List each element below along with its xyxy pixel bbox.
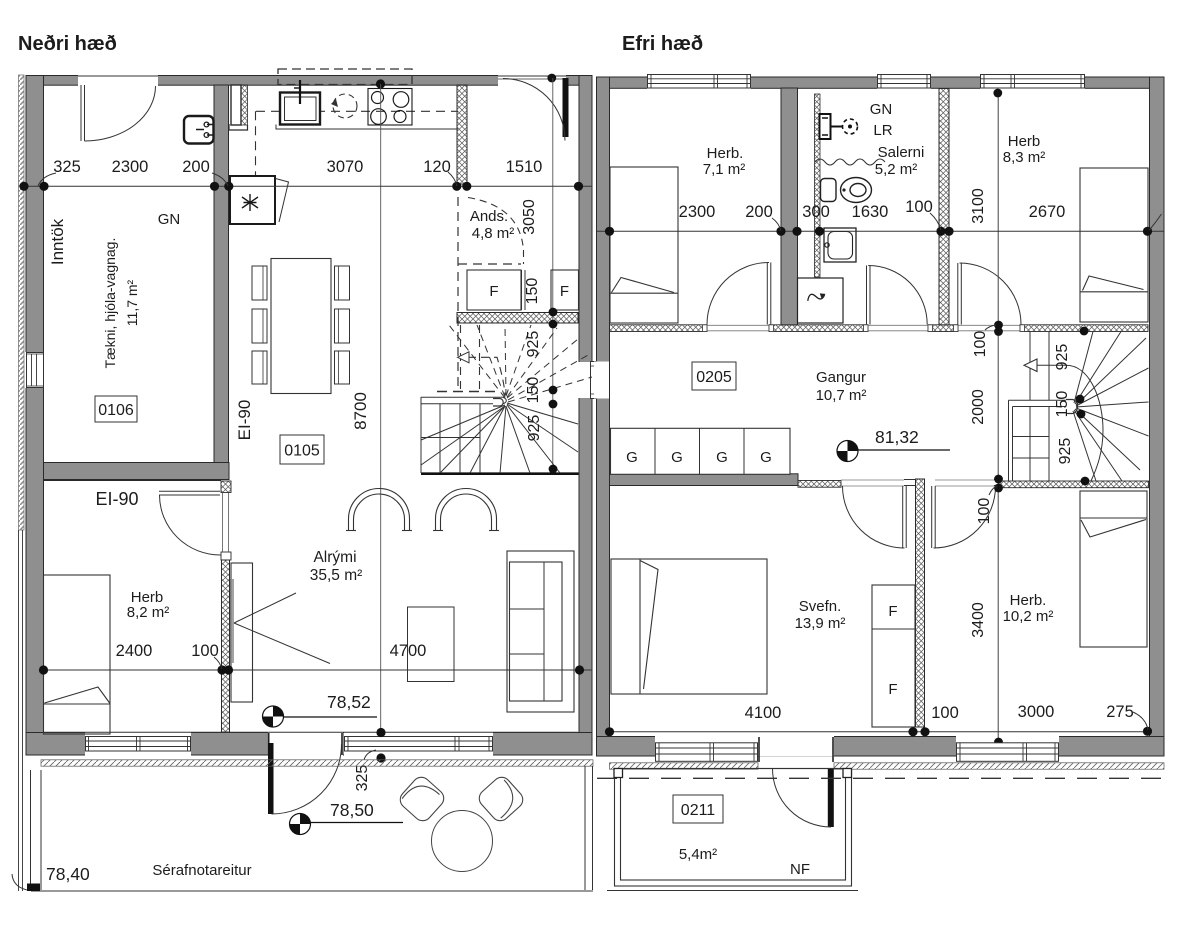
- svg-text:5,2 m²: 5,2 m²: [875, 161, 918, 178]
- svg-text:8,2 m²: 8,2 m²: [127, 604, 170, 621]
- svg-text:NF: NF: [790, 861, 810, 878]
- svg-text:2000: 2000: [970, 389, 987, 425]
- svg-text:Salerni: Salerni: [878, 144, 925, 161]
- svg-text:G: G: [760, 449, 772, 466]
- svg-text:7,1 m²: 7,1 m²: [703, 161, 746, 178]
- svg-text:Inntök: Inntök: [48, 218, 67, 265]
- svg-text:1510: 1510: [506, 158, 543, 176]
- svg-text:F: F: [489, 283, 498, 300]
- svg-text:81,32: 81,32: [875, 427, 919, 447]
- svg-text:1630: 1630: [852, 203, 889, 221]
- svg-text:Neðri hæð: Neðri hæð: [18, 33, 117, 55]
- svg-text:EI-90: EI-90: [235, 400, 254, 441]
- svg-text:78,50: 78,50: [330, 800, 374, 820]
- svg-text:3050: 3050: [521, 199, 538, 235]
- svg-text:100: 100: [931, 704, 959, 722]
- svg-text:10,2 m²: 10,2 m²: [1003, 608, 1054, 625]
- svg-text:5,4m²: 5,4m²: [679, 846, 717, 863]
- svg-text:F: F: [888, 681, 897, 698]
- svg-text:150: 150: [524, 278, 541, 305]
- svg-text:LR: LR: [873, 122, 892, 139]
- svg-text:4,8 m²: 4,8 m²: [472, 225, 515, 242]
- svg-text:GN: GN: [158, 211, 181, 228]
- svg-text:G: G: [626, 449, 638, 466]
- svg-text:2300: 2300: [112, 158, 149, 176]
- svg-text:3000: 3000: [1018, 703, 1055, 721]
- svg-text:3070: 3070: [327, 158, 364, 176]
- svg-text:F: F: [888, 603, 897, 620]
- svg-text:325: 325: [354, 765, 371, 792]
- svg-text:2300: 2300: [679, 203, 716, 221]
- svg-text:78,40: 78,40: [46, 864, 90, 884]
- svg-text:8,3 m²: 8,3 m²: [1003, 149, 1046, 166]
- svg-text:200: 200: [745, 203, 773, 221]
- svg-text:Herb: Herb: [1008, 133, 1041, 150]
- svg-text:G: G: [716, 449, 728, 466]
- svg-text:4700: 4700: [390, 642, 427, 660]
- svg-text:925: 925: [526, 415, 543, 442]
- svg-text:3100: 3100: [970, 188, 987, 224]
- svg-text:100: 100: [972, 331, 989, 358]
- svg-text:300: 300: [802, 203, 830, 221]
- svg-text:925: 925: [1057, 438, 1074, 465]
- svg-text:GN: GN: [870, 101, 893, 118]
- svg-text:150: 150: [525, 377, 542, 404]
- svg-text:F: F: [560, 283, 569, 300]
- svg-text:G: G: [671, 449, 683, 466]
- svg-text:Sérafnotareitur: Sérafnotareitur: [152, 862, 251, 879]
- svg-text:Svefn.: Svefn.: [799, 598, 842, 615]
- svg-text:Gangur: Gangur: [816, 369, 866, 386]
- svg-text:100: 100: [905, 198, 933, 216]
- svg-text:3400: 3400: [970, 602, 987, 638]
- svg-text:Tækni, hjóla-vagnag.: Tækni, hjóla-vagnag.: [102, 238, 118, 369]
- svg-text:35,5 m²: 35,5 m²: [310, 567, 363, 584]
- svg-text:0205: 0205: [696, 369, 732, 386]
- svg-text:Herb.: Herb.: [1010, 592, 1047, 609]
- svg-text:2400: 2400: [116, 642, 153, 660]
- svg-text:0211: 0211: [681, 802, 716, 819]
- svg-text:4100: 4100: [745, 704, 782, 722]
- svg-text:120: 120: [423, 158, 451, 176]
- svg-text:100: 100: [976, 498, 993, 525]
- svg-text:200: 200: [182, 158, 210, 176]
- svg-text:Alrými: Alrými: [313, 549, 356, 566]
- svg-text:325: 325: [53, 158, 81, 176]
- svg-text:10,7 m²: 10,7 m²: [816, 387, 867, 404]
- svg-text:13,9 m²: 13,9 m²: [795, 615, 846, 632]
- svg-text:Efri hæð: Efri hæð: [622, 33, 703, 55]
- svg-text:78,52: 78,52: [327, 692, 371, 712]
- svg-text:Herb.: Herb.: [707, 145, 744, 162]
- svg-text:0106: 0106: [98, 402, 134, 419]
- svg-text:EI-90: EI-90: [95, 489, 138, 509]
- svg-text:925: 925: [525, 331, 542, 358]
- svg-text:275: 275: [1106, 703, 1134, 721]
- svg-text:11,7 m²: 11,7 m²: [124, 279, 140, 326]
- svg-text:0105: 0105: [284, 443, 320, 460]
- svg-text:2670: 2670: [1029, 203, 1066, 221]
- svg-text:Ands.: Ands.: [470, 208, 508, 225]
- svg-text:925: 925: [1054, 344, 1071, 371]
- svg-text:8700: 8700: [351, 392, 370, 430]
- svg-text:150: 150: [1054, 391, 1071, 418]
